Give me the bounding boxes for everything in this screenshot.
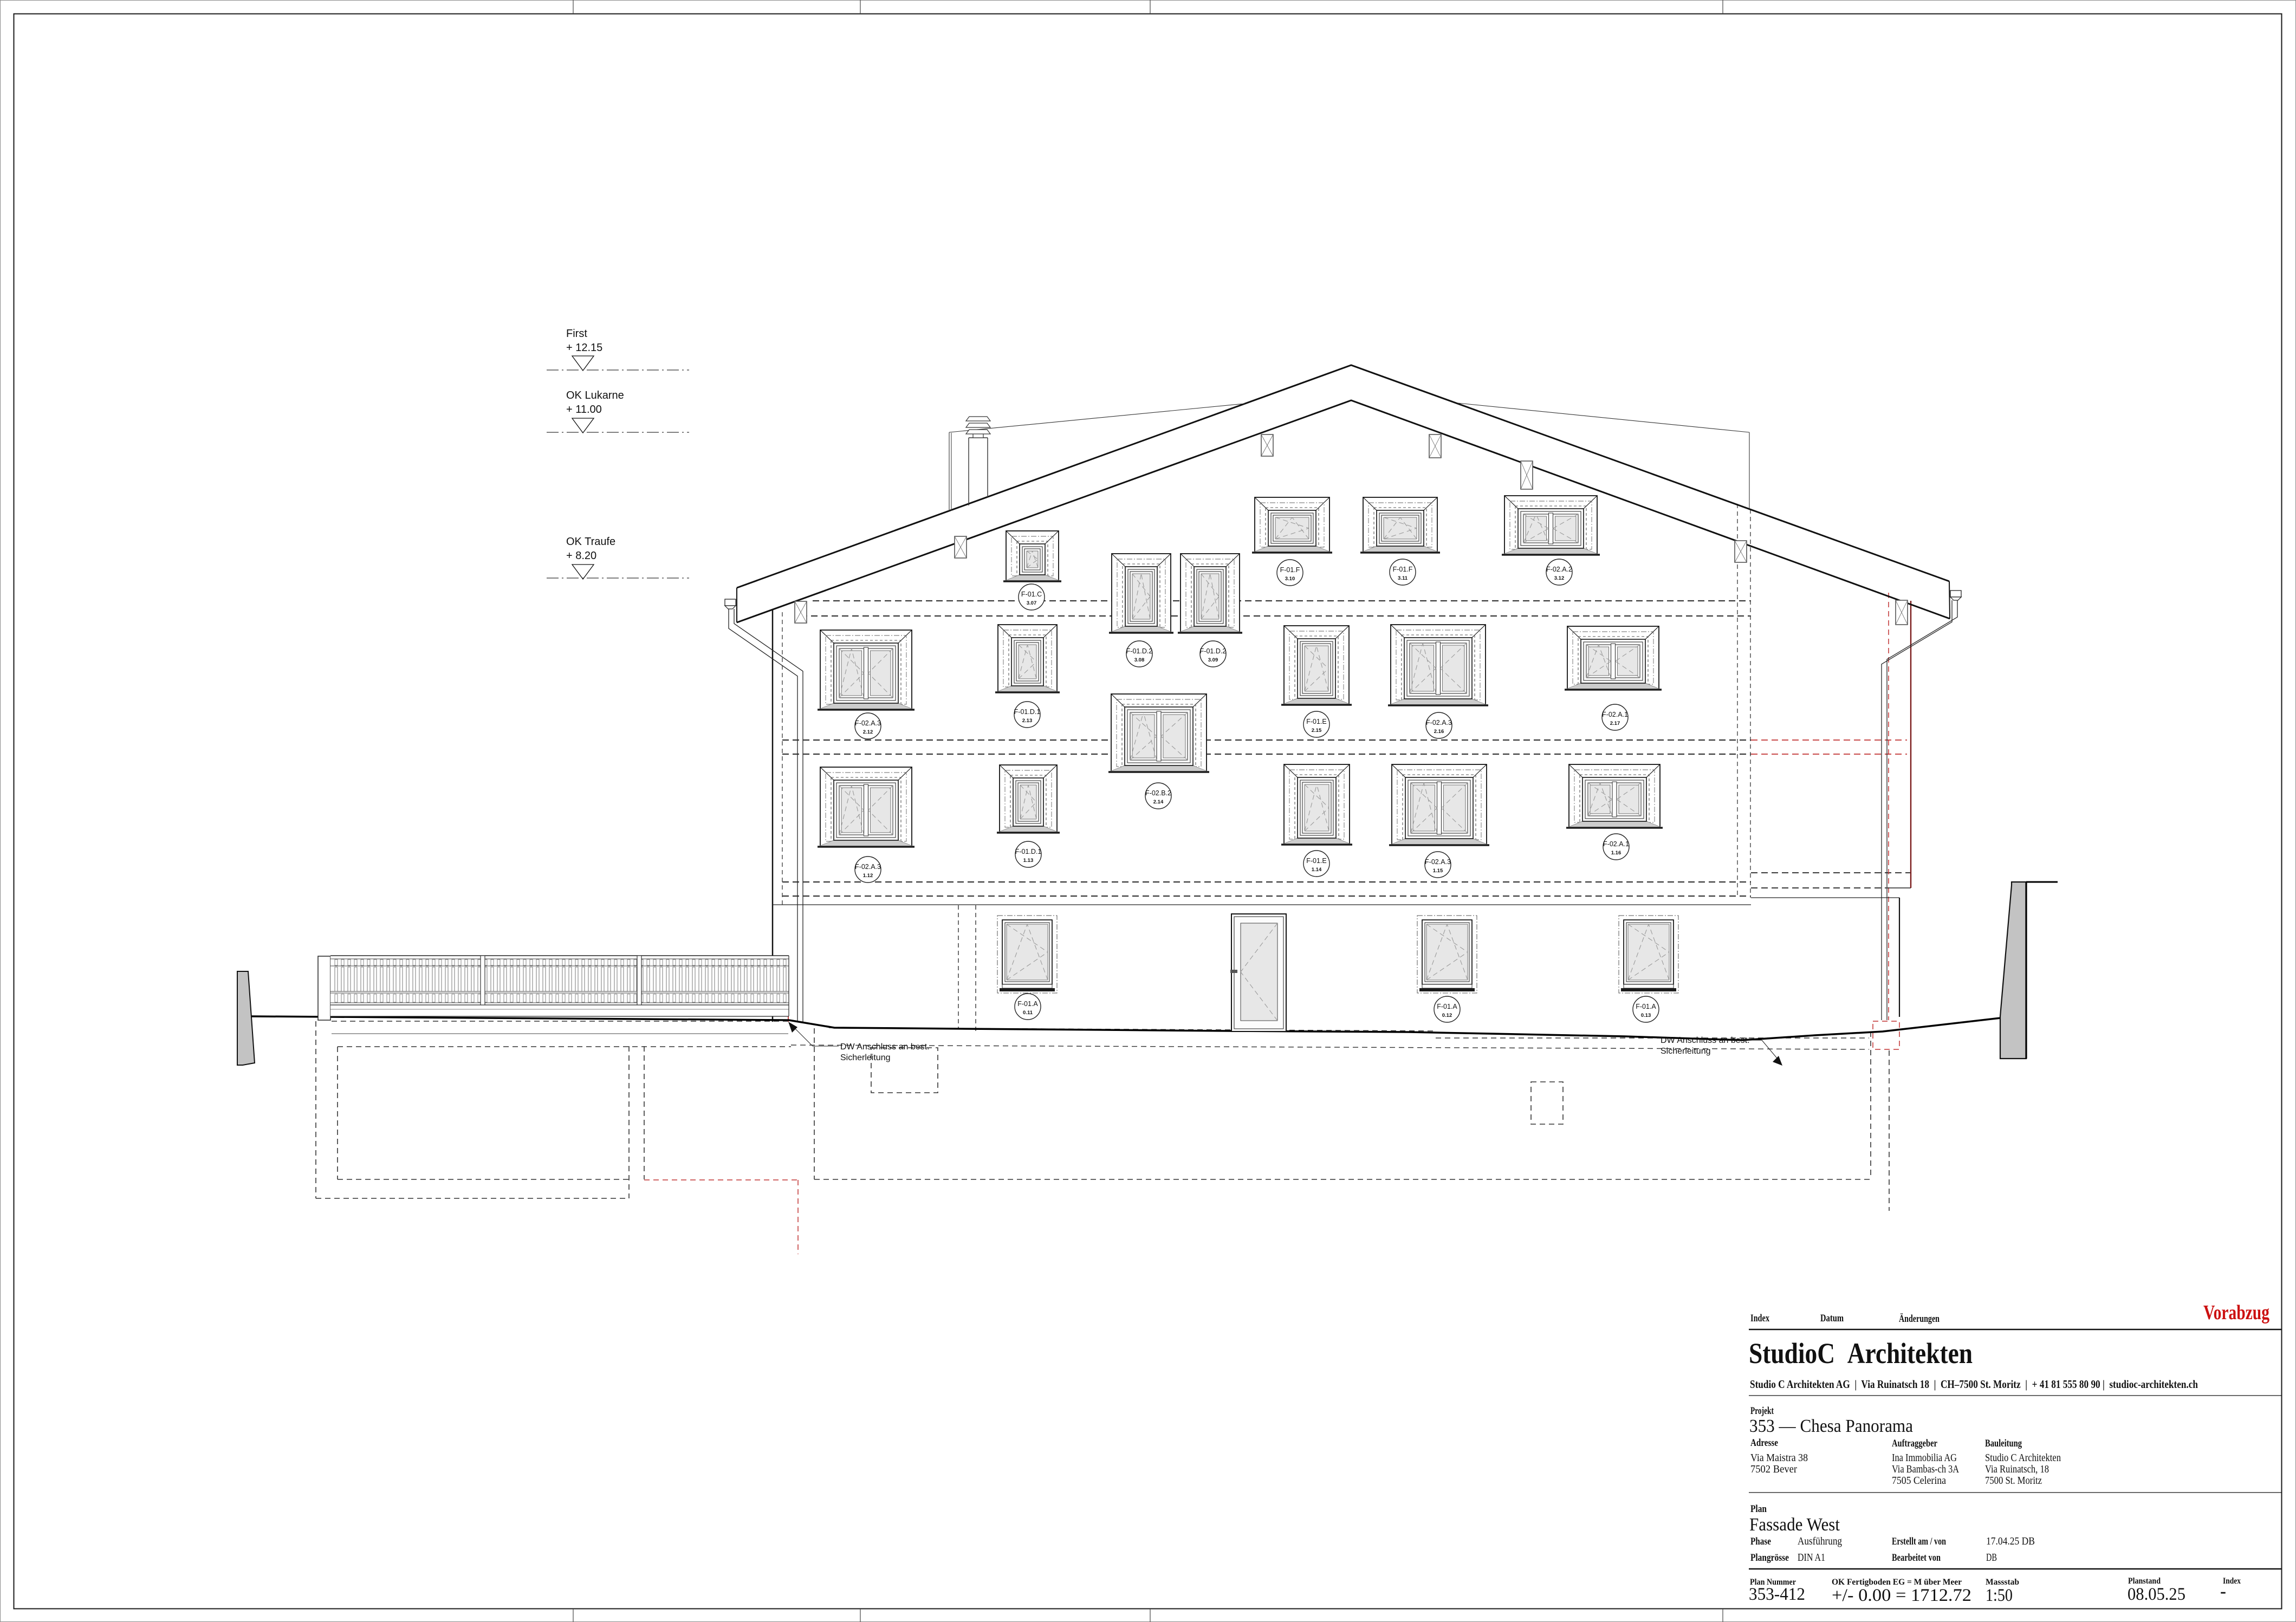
svg-text:Fassade West: Fassade West	[1749, 1515, 1840, 1535]
svg-text:F-02.A.3: F-02.A.3	[855, 719, 881, 727]
svg-text:Projekt: Projekt	[1750, 1405, 1774, 1417]
svg-text:F-01.E: F-01.E	[1306, 718, 1327, 725]
svg-text:08.05.25: 08.05.25	[2128, 1585, 2185, 1604]
svg-text:3.08: 3.08	[1134, 657, 1145, 663]
svg-text:F-02.A.1: F-02.A.1	[1602, 711, 1628, 718]
svg-text:1:50: 1:50	[1986, 1586, 2013, 1605]
svg-text:17.04.25 DB: 17.04.25 DB	[1986, 1535, 2035, 1547]
svg-text:F-02.A.1: F-02.A.1	[1603, 840, 1629, 848]
svg-text:7502 Bever: 7502 Bever	[1750, 1463, 1797, 1475]
svg-text:Auftraggeber: Auftraggeber	[1892, 1438, 1937, 1449]
svg-text:0.12: 0.12	[1442, 1013, 1452, 1018]
svg-text:Vorabzug: Vorabzug	[2203, 1301, 2269, 1324]
svg-text:Ausführung: Ausführung	[1798, 1535, 1842, 1547]
svg-text:Phase: Phase	[1750, 1536, 1771, 1547]
svg-text:F-01.A: F-01.A	[1636, 1003, 1656, 1010]
svg-text:Bearbeitet von: Bearbeitet von	[1892, 1552, 1941, 1563]
svg-text:1.16: 1.16	[1611, 850, 1622, 856]
svg-text:OK Lukarne: OK Lukarne	[566, 390, 624, 401]
svg-text:Plan: Plan	[1750, 1503, 1767, 1515]
svg-text:Ina Immobilia AG: Ina Immobilia AG	[1892, 1452, 1957, 1464]
svg-text:Plangrösse: Plangrösse	[1750, 1552, 1789, 1563]
svg-text:3.12: 3.12	[1554, 575, 1565, 581]
svg-text:2.17: 2.17	[1610, 721, 1620, 726]
svg-text:F-02.B.2: F-02.B.2	[1145, 789, 1171, 797]
svg-text:7500 St. Moritz: 7500 St. Moritz	[1985, 1475, 2042, 1487]
svg-text:DB: DB	[1986, 1552, 1997, 1563]
svg-text:Bauleitung: Bauleitung	[1985, 1438, 2022, 1449]
svg-text:StudioC Architekten: StudioC Architekten	[1749, 1337, 1973, 1370]
svg-text:+ 11.00: + 11.00	[566, 404, 602, 416]
svg-text:2.14: 2.14	[1153, 799, 1164, 805]
svg-text:F-02.A.3: F-02.A.3	[1425, 858, 1451, 866]
svg-text:F-01.A: F-01.A	[1017, 1000, 1038, 1008]
svg-text:0.13: 0.13	[1641, 1013, 1651, 1018]
svg-text:F-01.D.2: F-01.D.2	[1200, 647, 1227, 655]
svg-text:F-01.F: F-01.F	[1280, 566, 1300, 574]
svg-text:2.13: 2.13	[1022, 718, 1033, 724]
svg-text:Adresse: Adresse	[1750, 1437, 1778, 1449]
svg-text:Datum: Datum	[1820, 1313, 1844, 1324]
svg-text:3.11: 3.11	[1398, 575, 1408, 581]
svg-text:1.15: 1.15	[1433, 868, 1443, 874]
svg-text:1.14: 1.14	[1312, 867, 1322, 873]
svg-text:3.10: 3.10	[1285, 576, 1295, 582]
svg-text:+ 12.15: + 12.15	[566, 342, 602, 354]
svg-text:+ 8.20: + 8.20	[566, 550, 596, 562]
svg-text:2.12: 2.12	[863, 729, 873, 735]
svg-text:F-01.D.2: F-01.D.2	[1126, 647, 1153, 655]
svg-text:F-02.A.3: F-02.A.3	[855, 863, 881, 871]
svg-text:Via Bambas-ch 3A: Via Bambas-ch 3A	[1892, 1463, 1959, 1475]
svg-text:+/- 0.00 = 1712.72: +/- 0.00 = 1712.72	[1832, 1586, 1971, 1605]
svg-text:1.12: 1.12	[863, 873, 873, 879]
svg-text:F-02.A.2: F-02.A.2	[1546, 566, 1572, 573]
svg-text:3.07: 3.07	[1027, 600, 1037, 606]
svg-text:F-01.A: F-01.A	[1437, 1003, 1457, 1010]
svg-text:F-01.D.1: F-01.D.1	[1014, 708, 1041, 716]
svg-text:DW Anschluss an best.: DW Anschluss an best.	[840, 1042, 930, 1052]
svg-text:3.09: 3.09	[1208, 657, 1218, 663]
svg-text:Sicherleitung: Sicherleitung	[840, 1053, 891, 1062]
svg-text:F-01.F: F-01.F	[1393, 566, 1413, 573]
svg-text:OK Traufe: OK Traufe	[566, 536, 615, 548]
svg-text:F-01.D.1: F-01.D.1	[1015, 848, 1042, 855]
svg-text:DIN A1: DIN A1	[1798, 1552, 1825, 1563]
svg-text:0.11: 0.11	[1023, 1010, 1033, 1016]
svg-text:-: -	[2220, 1582, 2226, 1601]
svg-text:353 — Chesa Panorama: 353 — Chesa Panorama	[1749, 1416, 1913, 1436]
svg-text:Index: Index	[1750, 1313, 1769, 1324]
svg-text:Änderungen: Änderungen	[1899, 1313, 1940, 1325]
svg-text:353-412: 353-412	[1749, 1585, 1805, 1604]
svg-text:Via Ruinatsch, 18: Via Ruinatsch, 18	[1985, 1463, 2049, 1475]
svg-text:Studio C Architekten AG | Vi: Studio C Architekten AG | Via Ruinatsch …	[1750, 1378, 2198, 1391]
svg-text:Sicherleitung: Sicherleitung	[1661, 1047, 1711, 1056]
svg-text:First: First	[566, 328, 587, 340]
svg-text:2.16: 2.16	[1434, 729, 1444, 735]
svg-text:Erstellt am / von: Erstellt am / von	[1892, 1536, 1946, 1547]
svg-text:F-02.A.3: F-02.A.3	[1426, 719, 1452, 726]
svg-text:DW Anschluss an best.: DW Anschluss an best.	[1661, 1036, 1750, 1045]
svg-text:2.15: 2.15	[1312, 728, 1322, 734]
svg-text:F-01.E: F-01.E	[1306, 857, 1327, 865]
svg-text:Via Maistra 38: Via Maistra 38	[1750, 1452, 1808, 1464]
svg-text:7505 Celerina: 7505 Celerina	[1892, 1475, 1946, 1487]
svg-text:1.13: 1.13	[1023, 858, 1034, 864]
svg-text:F-01.C: F-01.C	[1021, 591, 1042, 598]
svg-text:Studio C Architekten: Studio C Architekten	[1985, 1452, 2061, 1464]
